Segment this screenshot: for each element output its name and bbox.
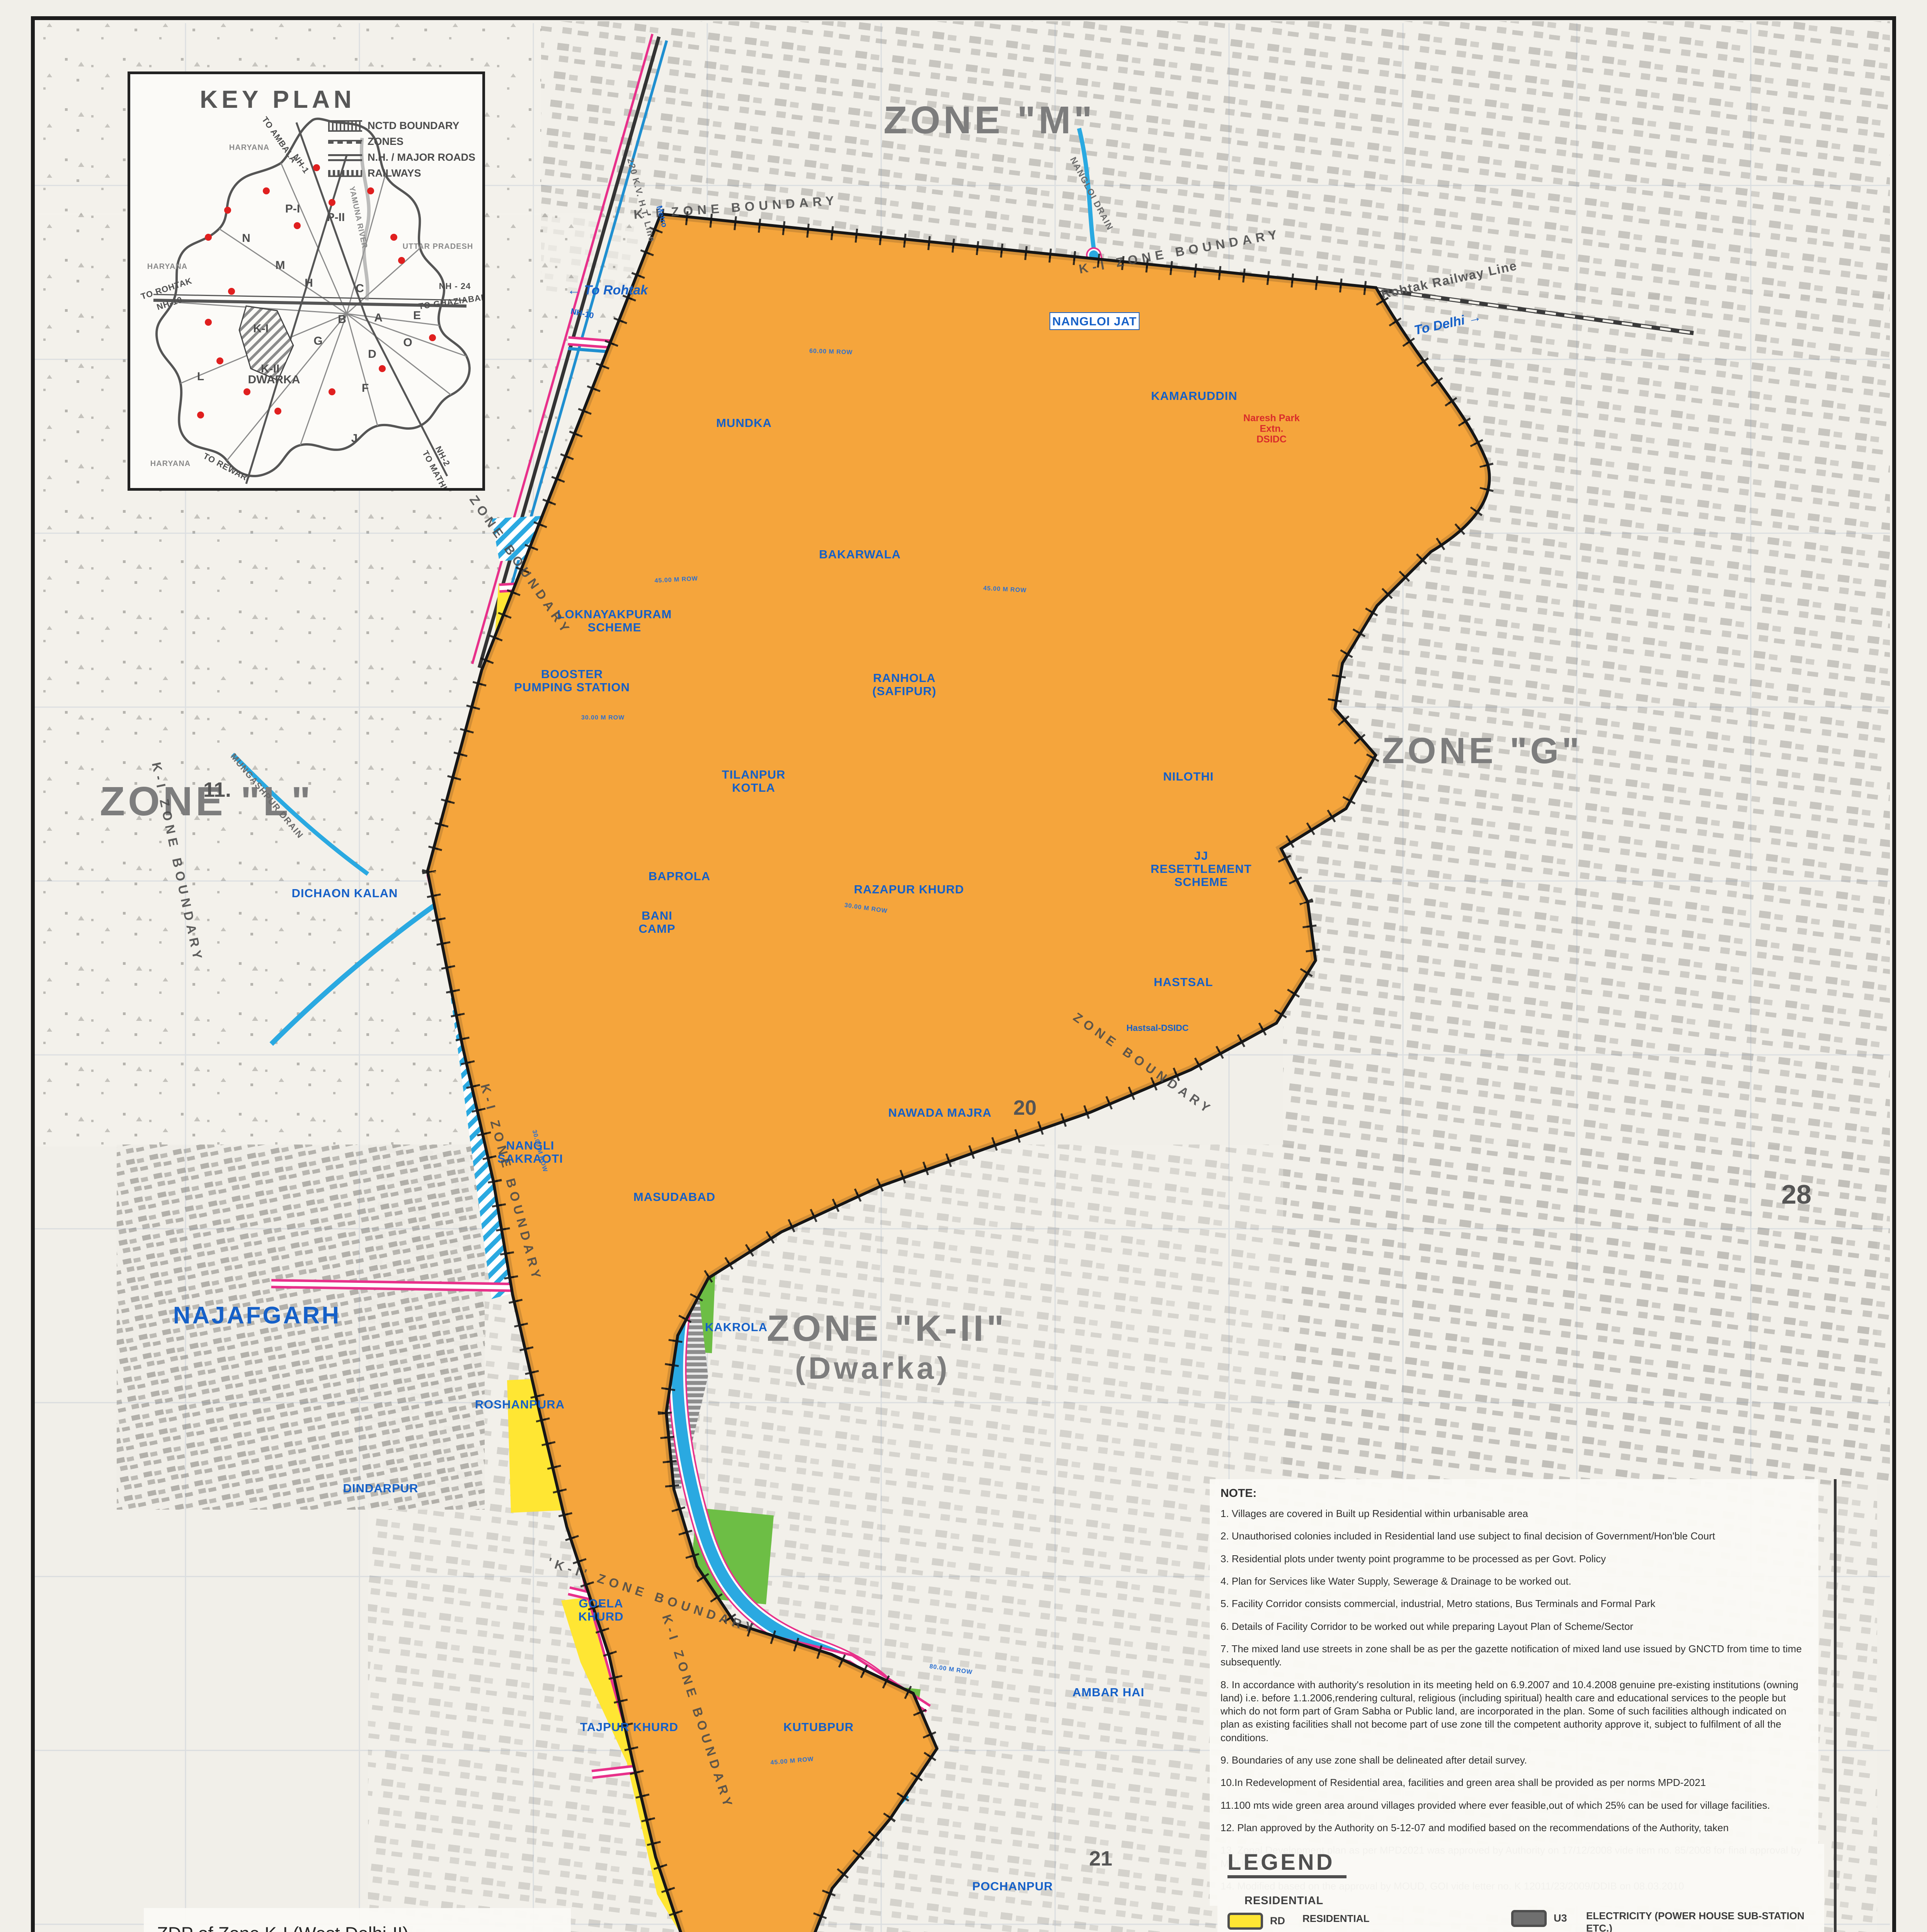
note-item: 1. Villages are covered in Built up Resi… — [1221, 1507, 1808, 1520]
legend-left-column: RESIDENTIALRDRESIDENTIALBUILT UP RESIDEN… — [1227, 1887, 1498, 1932]
legend-code: RD — [1270, 1913, 1295, 1927]
keyplan-legend-item: RAILWAYS — [328, 167, 475, 179]
divider-rule — [1834, 1479, 1837, 1932]
keyplan-label-g: G — [313, 335, 322, 347]
keyplan-label-o: O — [403, 336, 412, 349]
note-item: 11.100 mts wide green area around villag… — [1221, 1799, 1808, 1812]
keyplan-village-dot — [263, 187, 270, 194]
keyplan-label-dwarka: DWARKA — [248, 373, 300, 386]
keyplan-village-dot — [205, 319, 212, 326]
legend-title: LEGEND — [1227, 1849, 1347, 1878]
keyplan-village-dot — [313, 164, 320, 171]
note-item: 9. Boundaries of any use zone shall be d… — [1221, 1753, 1808, 1767]
key-plan-legend: NCTD BOUNDARYZONESN.H. / MAJOR ROADSRAIL… — [328, 120, 475, 183]
keyplan-label-l: L — [197, 370, 204, 383]
keyplan-legend-item: NCTD BOUNDARY — [328, 120, 475, 132]
keyplan-label-f: F — [362, 382, 369, 395]
legend-label: ELECTRICITY (POWER HOUSE SUB-STATION ETC… — [1586, 1910, 1809, 1932]
legend-panel: LEGEND RESIDENTIALRDRESIDENTIALBUILT UP … — [1217, 1844, 1824, 1932]
keyplan-village-dot — [329, 199, 335, 206]
note-item: 10.In Redevelopment of Residential area,… — [1221, 1776, 1808, 1789]
keyplan-village-dot — [205, 234, 212, 241]
keyplan-label-uttar-pradesh: UTTAR PRADESH — [403, 242, 473, 251]
keyplan-swatch-kp-rail — [328, 170, 362, 177]
notes-list: 1. Villages are covered in Built up Resi… — [1221, 1507, 1808, 1893]
note-item: 3. Residential plots under twenty point … — [1221, 1552, 1808, 1565]
keyplan-label-haryana: HARYANA — [229, 143, 269, 152]
keyplan-legend-label: ZONES — [368, 136, 403, 148]
keyplan-village-dot — [379, 365, 386, 372]
keyplan-village-dot — [398, 257, 405, 264]
key-plan: KEY PLAN P-IP-IINMHCBAEODGFJLK-IK-IIDWAR… — [128, 71, 485, 491]
keyplan-village-dot — [274, 408, 281, 415]
keyplan-village-dot — [367, 187, 374, 194]
note-item: 8. In accordance with authority's resolu… — [1221, 1678, 1808, 1745]
keyplan-village-dot — [294, 222, 301, 229]
keyplan-village-dot — [197, 412, 204, 418]
keyplan-village-dot — [243, 388, 250, 395]
keyplan-label-a: A — [374, 311, 383, 324]
legend-right-column: U3ELECTRICITY (POWER HOUSE SUB-STATION E… — [1511, 1887, 1809, 1932]
keyplan-swatch-kp-nh — [328, 154, 362, 161]
keyplan-village-dot — [390, 234, 397, 241]
keyplan-label-k-i: K-I — [253, 322, 269, 335]
keyplan-legend-label: NCTD BOUNDARY — [368, 120, 460, 132]
keyplan-label-d: D — [368, 348, 376, 361]
legend-swatch-rd — [1227, 1913, 1263, 1930]
legend-swatch-u3 — [1511, 1910, 1547, 1927]
keyplan-label-p-ii: P-II — [327, 211, 345, 224]
note-item: 6. Details of Facility Corridor to be wo… — [1221, 1620, 1808, 1633]
notes-title: NOTE: — [1221, 1487, 1808, 1500]
keyplan-village-dot — [429, 334, 436, 341]
note-item: 4. Plan for Services like Water Supply, … — [1221, 1575, 1808, 1588]
keyplan-swatch-kp-nctd — [328, 120, 362, 132]
keyplan-label-c: C — [356, 282, 364, 295]
keyplan-label-haryana: HARYANA — [150, 459, 191, 468]
note-item: 5. Facility Corridor consists commercial… — [1221, 1597, 1808, 1610]
legend-label: RESIDENTIAL — [1302, 1913, 1369, 1925]
keyplan-legend-label: RAILWAYS — [368, 167, 421, 179]
legend-section-header: RESIDENTIAL — [1244, 1895, 1498, 1907]
authentication-block: ZDP of Zone K-I (West Delhi-II) Authenti… — [144, 1908, 571, 1932]
keyplan-swatch-kp-zones — [328, 140, 362, 144]
auth-line: ZDP of Zone K-I (West Delhi-II) — [157, 1918, 558, 1932]
keyplan-label-h: H — [305, 277, 313, 289]
keyplan-legend-item: ZONES — [328, 136, 475, 148]
keyplan-label-nh-24: NH - 24 — [439, 281, 471, 291]
keyplan-label-p-i: P-I — [285, 202, 300, 215]
notes-panel: NOTE: 1. Villages are covered in Built u… — [1210, 1479, 1818, 1906]
keyplan-label-n: N — [242, 232, 250, 245]
keyplan-label-haryana: HARYANA — [147, 262, 187, 271]
legend-item-electricity-power-house-sub-station-etc: U3ELECTRICITY (POWER HOUSE SUB-STATION E… — [1511, 1910, 1809, 1932]
keyplan-village-dot — [329, 388, 335, 395]
keyplan-legend-item: N.H. / MAJOR ROADS — [328, 151, 475, 163]
legend-item-residential: RDRESIDENTIAL — [1227, 1913, 1498, 1930]
note-item: 7. The mixed land use streets in zone sh… — [1221, 1642, 1808, 1669]
keyplan-legend-label: N.H. / MAJOR ROADS — [368, 151, 475, 163]
plan-sheet: ZONE "M"ZONE "L"ZONE "G"ZONE "K-II"(Dwar… — [0, 0, 1927, 1932]
keyplan-village-dot — [216, 357, 223, 364]
keyplan-label-m: M — [276, 259, 285, 272]
legend-code: U3 — [1554, 1910, 1579, 1924]
note-item: 2. Unauthorised colonies included in Res… — [1221, 1529, 1808, 1543]
keyplan-village-dot — [224, 207, 231, 214]
keyplan-label-b: B — [338, 313, 346, 326]
keyplan-label-j: J — [351, 432, 358, 445]
note-item: 12. Plan approved by the Authority on 5-… — [1221, 1821, 1808, 1834]
keyplan-village-dot — [228, 288, 235, 295]
